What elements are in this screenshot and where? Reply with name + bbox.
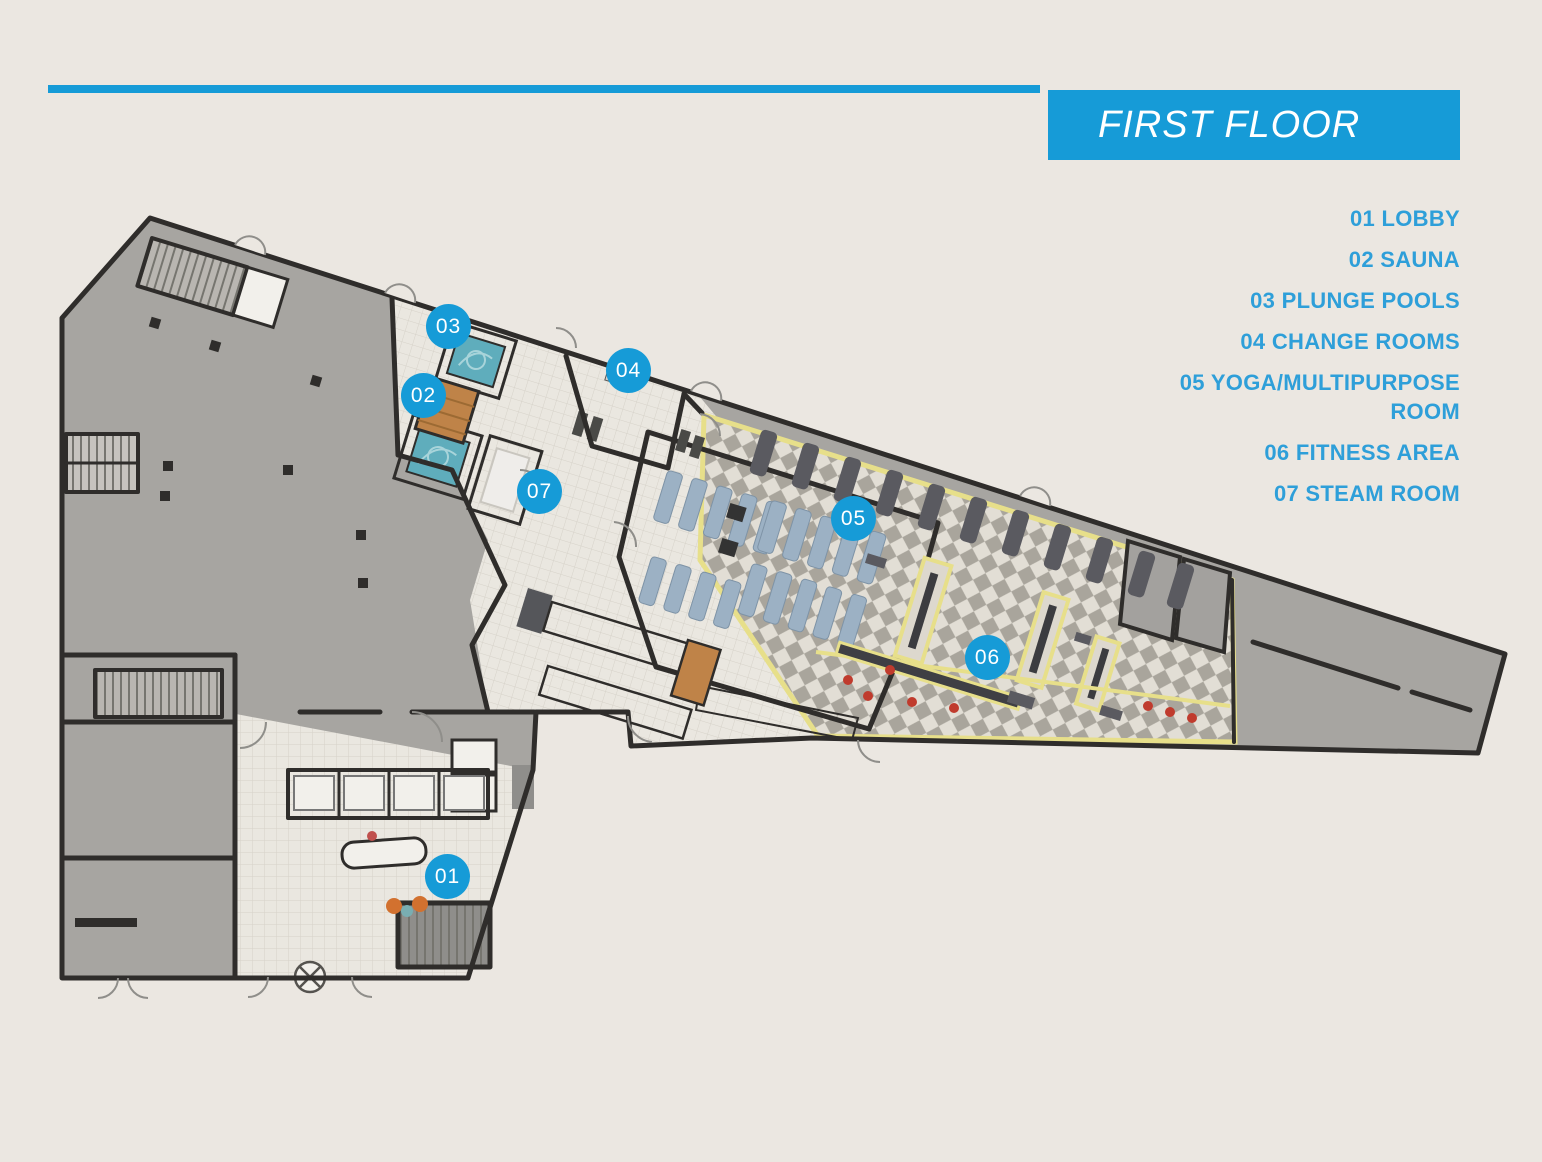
marker-07: 07 — [517, 469, 562, 514]
stairwell-left — [66, 434, 138, 492]
marker-06: 06 — [965, 635, 1010, 680]
stairwell-lobby-left — [95, 670, 222, 717]
floor-plan: 01020304050607 — [0, 0, 1542, 1162]
marker-01: 01 — [425, 854, 470, 899]
elevator-bank — [288, 770, 488, 818]
marker-03: 03 — [426, 304, 471, 349]
marker-02: 02 — [401, 373, 446, 418]
brochure-page: FIRST FLOOR 01 LOBBY02 SAUNA03 PLUNGE PO… — [0, 0, 1542, 1162]
floor-plan-drawing — [0, 0, 1542, 1162]
marker-05: 05 — [831, 496, 876, 541]
receptionist — [367, 831, 377, 841]
service-counter — [75, 918, 137, 927]
marker-04: 04 — [606, 348, 651, 393]
